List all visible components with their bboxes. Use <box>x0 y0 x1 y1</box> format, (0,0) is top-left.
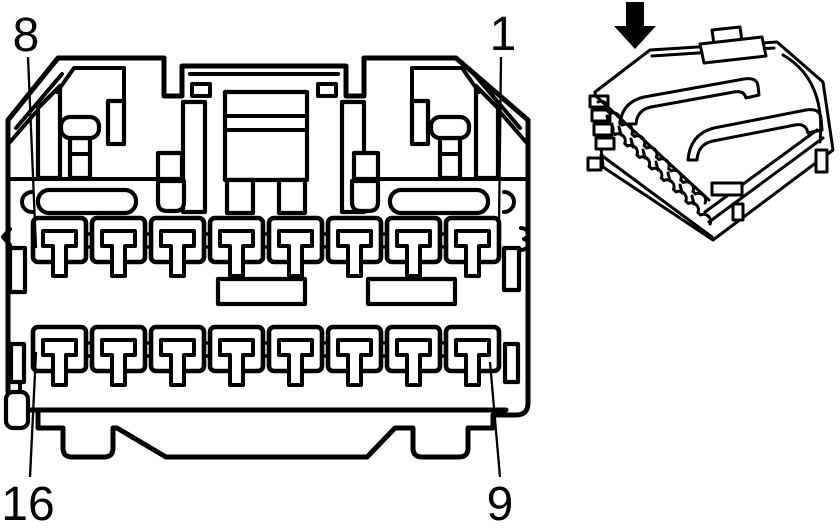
edge-notch-right <box>521 228 528 250</box>
flank-pocket-left <box>158 181 184 211</box>
iso-end-foot <box>588 158 601 170</box>
leader-line-1 <box>499 57 501 226</box>
slot-notch-left <box>22 192 32 212</box>
front-view: 8 1 16 9 <box>1 8 528 531</box>
edge-slot-left-lower <box>11 344 24 382</box>
flank-square-left <box>158 153 182 179</box>
flank-square-right <box>354 153 378 179</box>
latch-post-left <box>183 102 205 212</box>
pin-label-9: 9 <box>487 478 514 531</box>
edge-slot-left-upper <box>10 248 25 292</box>
edge-slot-right-lower <box>505 344 518 382</box>
block-slot-left <box>108 101 124 144</box>
pin-label-1: 1 <box>490 8 517 61</box>
latch-tower <box>225 92 307 180</box>
keyway-bar-left <box>218 279 305 304</box>
pin-label-8: 8 <box>13 9 40 62</box>
block-slot-right <box>412 101 428 144</box>
keyway-bar-right <box>368 279 455 304</box>
latch-bar-step-right <box>318 84 336 96</box>
housing-left-foot <box>6 392 28 428</box>
iso-side-slot <box>733 204 743 220</box>
edge-slot-right-upper <box>504 248 519 290</box>
guide-post-head-right <box>431 117 469 138</box>
housing-bottom-flange <box>38 410 493 457</box>
down-arrow-icon <box>614 2 656 49</box>
latch-tower-leg-right <box>279 180 305 213</box>
guide-post-stem-left <box>70 138 90 178</box>
pinout-diagram-canvas: 8 1 16 9 <box>0 0 840 532</box>
iso-side-notch <box>712 183 742 195</box>
pin-label-16: 16 <box>1 478 54 531</box>
guide-post-head-left <box>61 117 99 138</box>
connector-pinout-figure: 8 1 16 9 <box>0 0 840 532</box>
guide-post-stem-right <box>440 138 460 178</box>
iso-end-layer-3 <box>594 124 612 135</box>
iso-side-latch <box>816 150 827 172</box>
slot-notch-right <box>504 192 514 212</box>
slot-stadium-right <box>390 190 488 213</box>
latch-bar-step-left <box>192 84 210 96</box>
slot-stadium-left <box>38 190 136 213</box>
flank-pocket-right <box>352 181 378 211</box>
iso-end-layer-4 <box>596 138 614 149</box>
iso-view <box>588 2 833 240</box>
latch-tower-leg-left <box>227 180 253 213</box>
